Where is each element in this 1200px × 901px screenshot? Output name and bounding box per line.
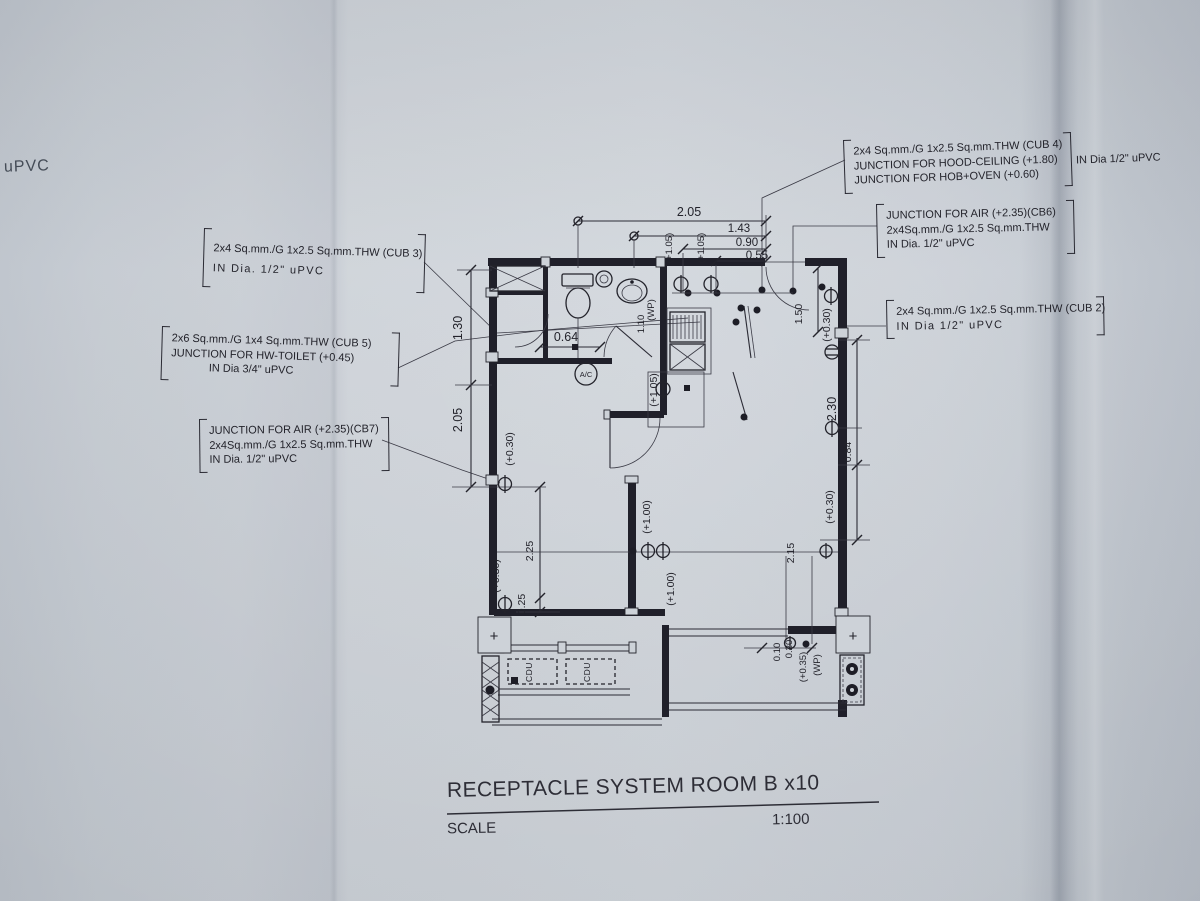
- dim-label: (+1.00): [665, 572, 677, 606]
- annotation-cub3: 2x4 Sq.mm./G 1x2.5 Sq.mm.THW (CUB 3) IN …: [202, 228, 426, 293]
- scale-value: 1:100: [772, 811, 810, 829]
- annotation-line: 2x4Sq.mm./G 1x2.5 Sq.mm.THW: [209, 437, 379, 453]
- dim-label: (+0.30): [504, 432, 516, 466]
- receptacle-symbol: [820, 543, 832, 559]
- toilet-tank: [562, 274, 593, 286]
- dim-label: (+0.35): [798, 652, 809, 682]
- dim-label: (+0.30): [490, 559, 502, 593]
- dim-label: 0.84: [842, 442, 854, 463]
- shaft-box: [490, 266, 548, 347]
- bracket-right: [416, 234, 426, 293]
- bracket-left: [199, 419, 208, 473]
- right-dimensions: 2.30 0.84 (+0.30) 1.50 (+0.30): [793, 263, 870, 545]
- kitchen-fixtures: [648, 275, 793, 427]
- bracket-left: [876, 204, 885, 258]
- dim-label: (+1.00): [641, 500, 653, 534]
- annotation-cb6: JUNCTION FOR AIR (+2.35)(CB6) 2x4Sq.mm./…: [876, 200, 1075, 258]
- bracket-right: [390, 332, 399, 386]
- cdu-label: CDU: [524, 662, 534, 682]
- faucet: [744, 306, 751, 358]
- hob-fixture: [670, 312, 705, 342]
- bracket-right: [1096, 296, 1105, 335]
- annotation-line: JUNCTION FOR AIR (+2.35)(CB7): [209, 422, 379, 438]
- title-rule: [447, 802, 879, 814]
- dim-label: (WP): [812, 654, 823, 676]
- dim-label: 0.10: [772, 643, 783, 662]
- annotation-line: 2x4 Sq.mm./G 1x2.5 Sq.mm.THW (CUB 3): [213, 241, 415, 261]
- annotation-cb7: JUNCTION FOR AIR (+2.35)(CB7) 2x4Sq.mm./…: [199, 417, 390, 473]
- dim-label: (+1.05): [696, 233, 707, 263]
- receptacle-symbol: [499, 475, 512, 493]
- bracket-left: [161, 326, 170, 380]
- dim-label: 2.15: [785, 543, 797, 564]
- dim-label: 2.05: [677, 205, 701, 219]
- dim-label: 0.25: [516, 594, 528, 615]
- annotation-cub4: 2x4 Sq.mm./G 1x2.5 Sq.mm.THW (CUB 4) JUN…: [843, 132, 1073, 193]
- bathroom-door-arc: [604, 326, 616, 357]
- balcony-left: CDU CDU +: [478, 617, 662, 725]
- dim-label: (+1.05): [648, 373, 660, 407]
- bracket-left: [886, 300, 895, 339]
- dim-label: 2.05: [451, 408, 465, 432]
- dim-label: 0.55: [746, 250, 768, 262]
- annotation-line: IN Dia. 1/2" uPVC: [209, 451, 379, 467]
- dim-label: 0.20: [784, 640, 795, 659]
- annotation-line: IN Dia. 1/2" uPVC: [213, 261, 415, 281]
- toilet-bowl: [566, 288, 590, 318]
- annotation-cub2: 2x4 Sq.mm./G 1x2.5 Sq.mm.THW (CUB 2) IN …: [886, 296, 1105, 339]
- receptacle-symbol: [657, 542, 670, 560]
- receptacle-symbol: [825, 287, 838, 305]
- tv-outlet-symbol: [825, 345, 839, 359]
- middle-receptacle-line: (+1.00) (+1.00) 2.15: [497, 500, 838, 644]
- photographed-drawing-page: { "page": { "corner_text": "uPVC", "titl…: [0, 0, 1200, 901]
- annotation-line: IN Dia. 1/2" uPVC: [887, 234, 1065, 252]
- dim-label: 2.25: [524, 541, 536, 562]
- washer-fixture: [596, 271, 612, 287]
- dim-label: 0.90: [736, 237, 758, 249]
- balcony-right: + 0.10 0.20 (+0.35) (WP): [669, 616, 870, 710]
- scale-label: SCALE: [447, 820, 496, 838]
- column-plus: +: [849, 628, 858, 645]
- dim-label: 2.30: [825, 397, 839, 421]
- annotation-line: IN Dia 1/2" uPVC: [896, 316, 1094, 334]
- dim-label: (WP): [646, 299, 657, 321]
- receptacle-symbol: [642, 542, 655, 560]
- ac-label: A/C: [580, 370, 593, 379]
- bracket-left: [202, 228, 212, 287]
- wp-receptacle-box: [840, 655, 864, 705]
- annotation-cub5: 2x6 Sq.mm./G 1x4 Sq.mm.THW (CUB 5) JUNCT…: [161, 326, 400, 386]
- dim-label: 1.43: [728, 223, 750, 235]
- bracket-right: [1066, 200, 1075, 254]
- dim-label: 1.50: [793, 304, 805, 325]
- bracket-right: [381, 417, 390, 471]
- dim-label: 0.64: [554, 330, 578, 344]
- top-right-door: [766, 267, 809, 310]
- dim-label: (+0.30): [824, 490, 836, 524]
- dim-label: (+0.30): [821, 308, 833, 342]
- entry-door: [610, 418, 660, 468]
- corner-upvc-text: uPVC: [4, 157, 50, 177]
- bracket-left: [843, 140, 853, 194]
- column-plus: +: [490, 628, 499, 645]
- top-dimensions: 2.05 1.43 0.90 0.55 (+1.05) (+1.05): [573, 205, 771, 293]
- dim-label: (+1.05): [664, 233, 675, 263]
- cdu-label: CDU: [582, 662, 592, 682]
- dim-label: 1.30: [451, 316, 465, 340]
